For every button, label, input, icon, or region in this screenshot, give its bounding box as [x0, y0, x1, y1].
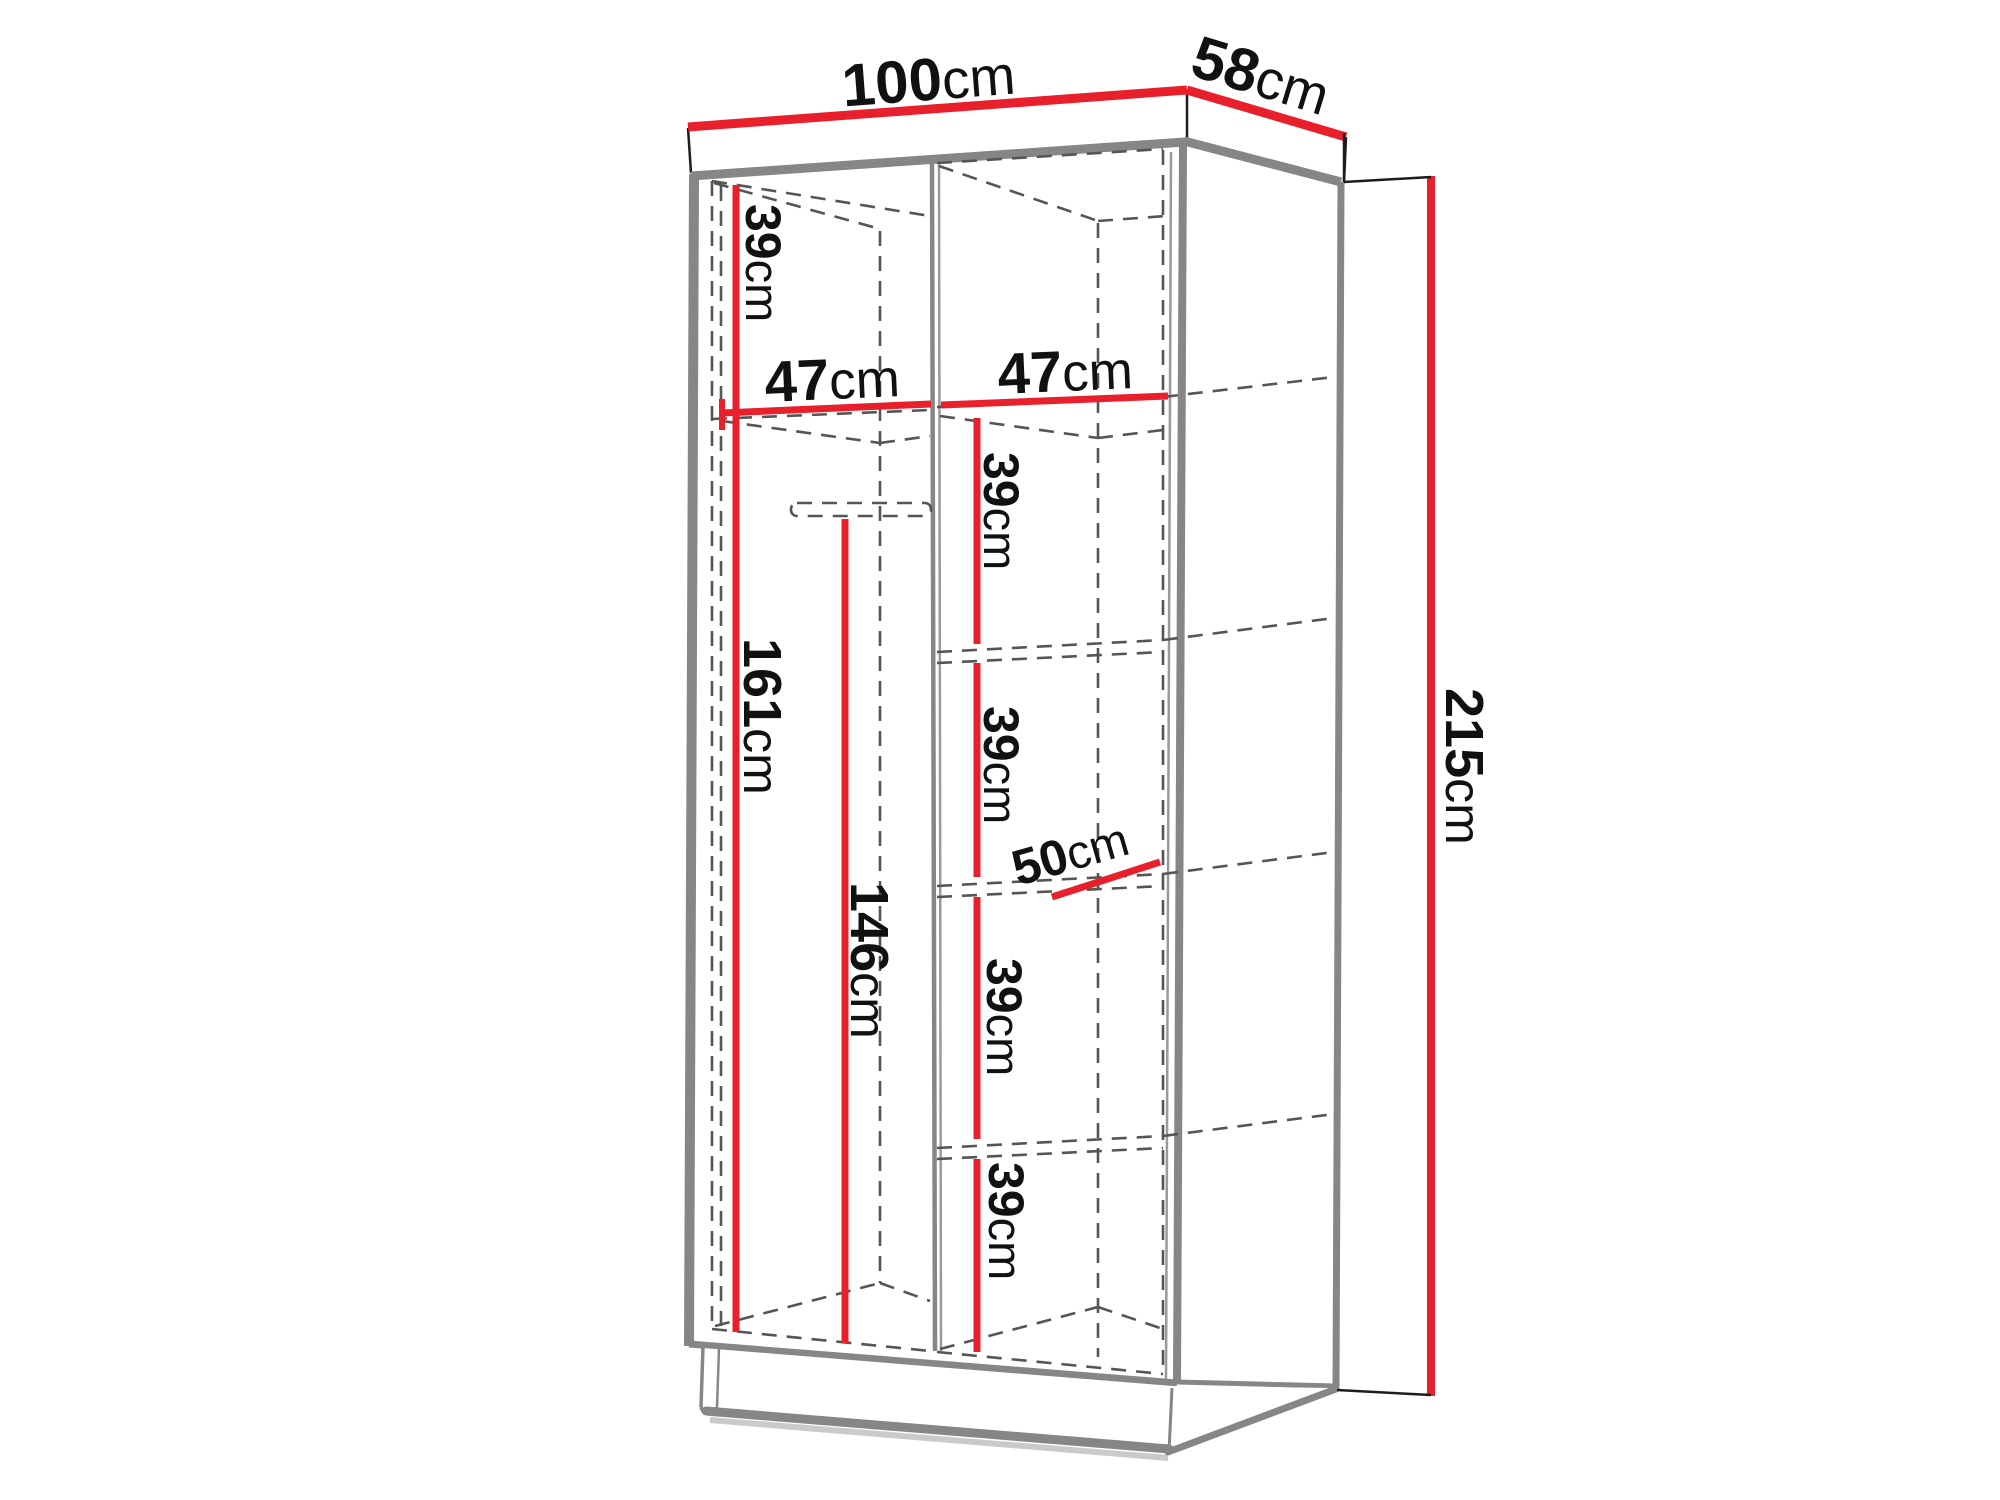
wardrobe-plinth — [701, 1346, 1336, 1458]
dimension-extension-lines — [1337, 133, 1431, 1395]
top-shelf-drop-label: 39cm — [735, 204, 791, 322]
rail-clearance-height-label: 146cm — [839, 882, 899, 1039]
wardrobe-dimension-diagram: 100cm 58cm 215cm 39cm 47cm 47cm 161cm 14… — [0, 0, 2000, 1500]
right-shelf-gap-label-1: 39cm — [973, 452, 1029, 570]
wardrobe-diagram-canvas: 100cm 58cm 215cm 39cm 47cm 47cm 161cm 14… — [0, 0, 2000, 1500]
hanging-rail — [791, 503, 931, 516]
right-shelf-gap-label-2: 39cm — [973, 706, 1029, 824]
right-section-width-label: 47cm — [996, 336, 1134, 407]
right-shelf-gap-label-4: 39cm — [978, 1162, 1034, 1280]
hanging-section-height-label: 161cm — [732, 638, 792, 795]
right-shelf-gap-label-3: 39cm — [976, 958, 1032, 1076]
left-section-width-label: 47cm — [763, 344, 901, 415]
dimension-lines — [688, 90, 1431, 1396]
height-dimension-label: 215cm — [1434, 688, 1494, 845]
